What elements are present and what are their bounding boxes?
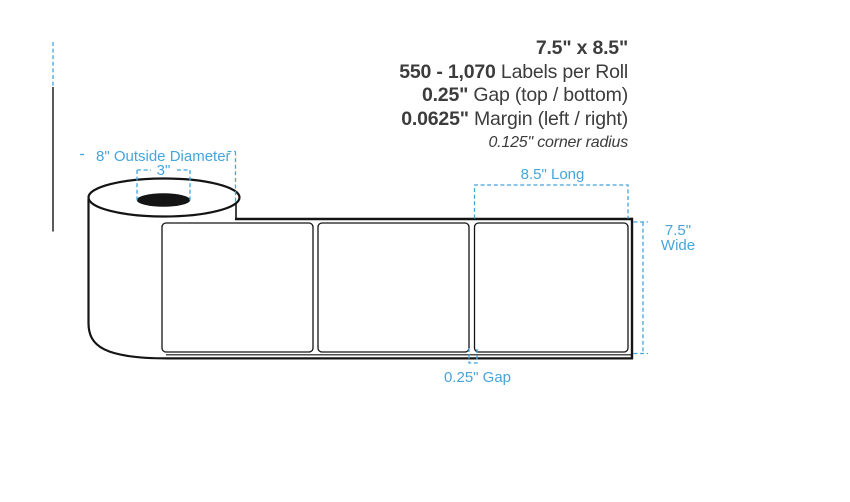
dim-label-length-bracket bbox=[475, 185, 629, 219]
spec-block: 7.5" x 8.5" 550 - 1,070 Labels per Roll … bbox=[399, 37, 628, 155]
spec-labels-per-roll: 550 - 1,070 Labels per Roll bbox=[399, 61, 628, 85]
core-diameter-label: 3" bbox=[143, 163, 184, 179]
label-rect-1 bbox=[162, 223, 313, 352]
spec-size: 7.5" x 8.5" bbox=[399, 37, 628, 61]
label-rect-2 bbox=[318, 223, 469, 352]
roll-core bbox=[137, 193, 190, 206]
label-width-caption: 7.5" Wide bbox=[648, 223, 708, 254]
spec-gap: 0.25" Gap (top / bottom) bbox=[399, 84, 628, 108]
label-rect-3 bbox=[475, 223, 629, 352]
label-width-caption-line1: 7.5" bbox=[648, 223, 708, 239]
label-width-caption-line2: Wide bbox=[648, 238, 708, 254]
spec-margin: 0.0625" Margin (left / right) bbox=[399, 108, 628, 132]
label-length-caption: 8.5" Long bbox=[512, 167, 593, 183]
spec-corner-radius: 0.125" corner radius bbox=[399, 131, 628, 155]
gap-caption: 0.25" Gap bbox=[437, 370, 518, 386]
dim-label-width-bracket bbox=[634, 222, 649, 354]
label-roll-spec-diagram: 7.5" x 8.5" 550 - 1,070 Labels per Roll … bbox=[0, 0, 850, 502]
